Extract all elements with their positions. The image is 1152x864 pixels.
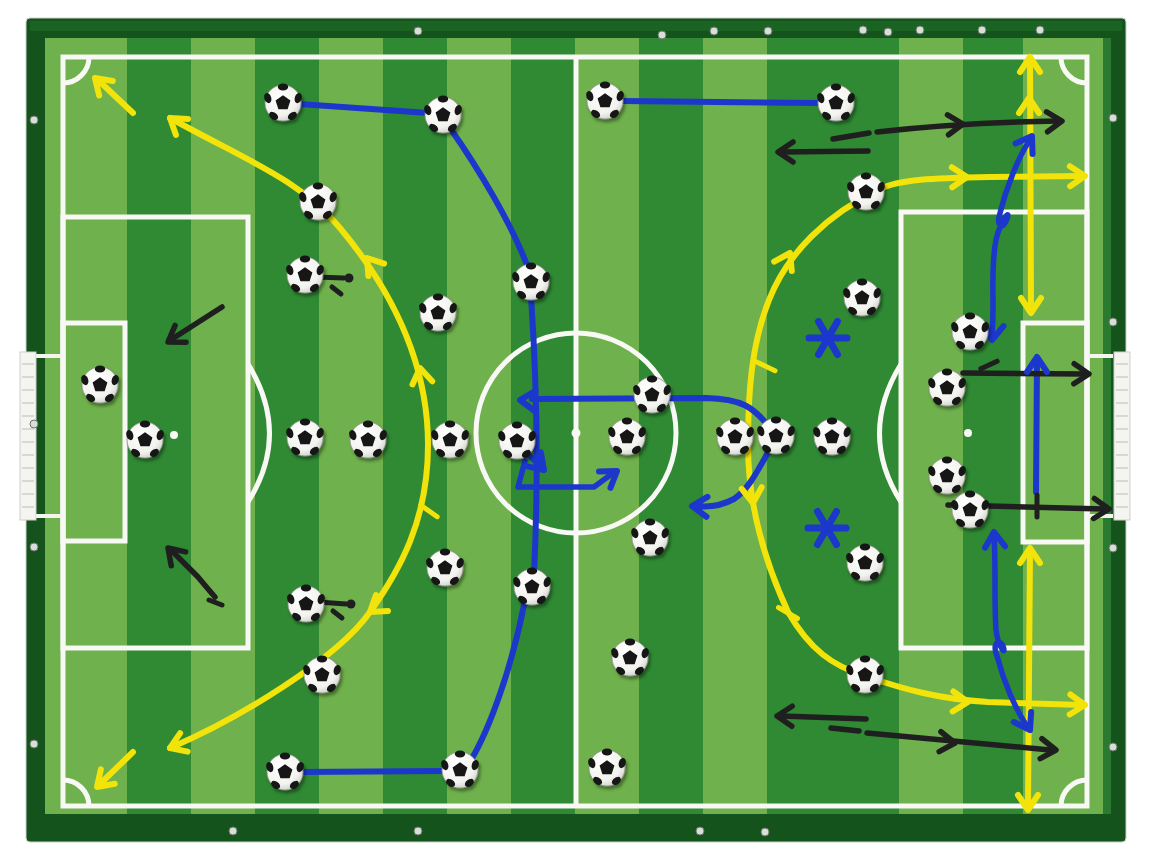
screw-icon: [1109, 114, 1117, 122]
annotation-blue-pass-top: [622, 101, 820, 103]
frame-top-bevel: [30, 21, 1122, 31]
annotation-blue-pass-bottom-left: [299, 771, 446, 772]
tactics-board-scene: [0, 0, 1152, 864]
screw-icon: [1109, 743, 1117, 751]
annotation-black-arrow-box-upper: [963, 373, 1084, 374]
screw-icon: [414, 827, 422, 835]
screw-icon: [229, 827, 237, 835]
screw-icon: [1036, 26, 1044, 34]
pen-dot: [345, 274, 354, 283]
screw-icon: [916, 26, 924, 34]
annotation-black-arrow-top-left-of-pair: [782, 151, 868, 152]
screw-icon: [764, 27, 772, 35]
annotation-black-dash-bottom: [831, 728, 859, 731]
screw-icon: [710, 27, 718, 35]
screw-icon: [30, 740, 38, 748]
pen-dot: [347, 600, 356, 609]
screw-icon: [761, 828, 769, 836]
screw-icon: [978, 26, 986, 34]
screw-icon: [30, 116, 38, 124]
penalty-spot-left: [170, 431, 178, 439]
screw-icon: [696, 827, 704, 835]
screw-icon: [658, 31, 666, 39]
frame-right-bevel: [1103, 38, 1111, 814]
penalty-spot-right: [964, 429, 972, 437]
screw-icon: [1109, 544, 1117, 552]
center-spot: [572, 429, 581, 438]
screw-icon: [30, 420, 38, 428]
annotation-blue-arrow-goalmouth: [1036, 360, 1037, 492]
tactics-board-photo: [0, 0, 1152, 864]
pitch-stripe: [45, 38, 127, 814]
screw-icon: [414, 27, 422, 35]
pitch-stripe: [191, 38, 255, 814]
annotation-black-arrow-bottom-left-of-pair: [782, 716, 866, 719]
screw-icon: [30, 543, 38, 551]
screw-icon: [884, 28, 892, 36]
screw-icon: [1109, 318, 1117, 326]
pitch-stripe: [383, 38, 447, 814]
screw-icon: [859, 26, 867, 34]
annotation-yellow-vertical-arrow-bottom-right: [1028, 551, 1030, 806]
pitch-stripe: [639, 38, 703, 814]
